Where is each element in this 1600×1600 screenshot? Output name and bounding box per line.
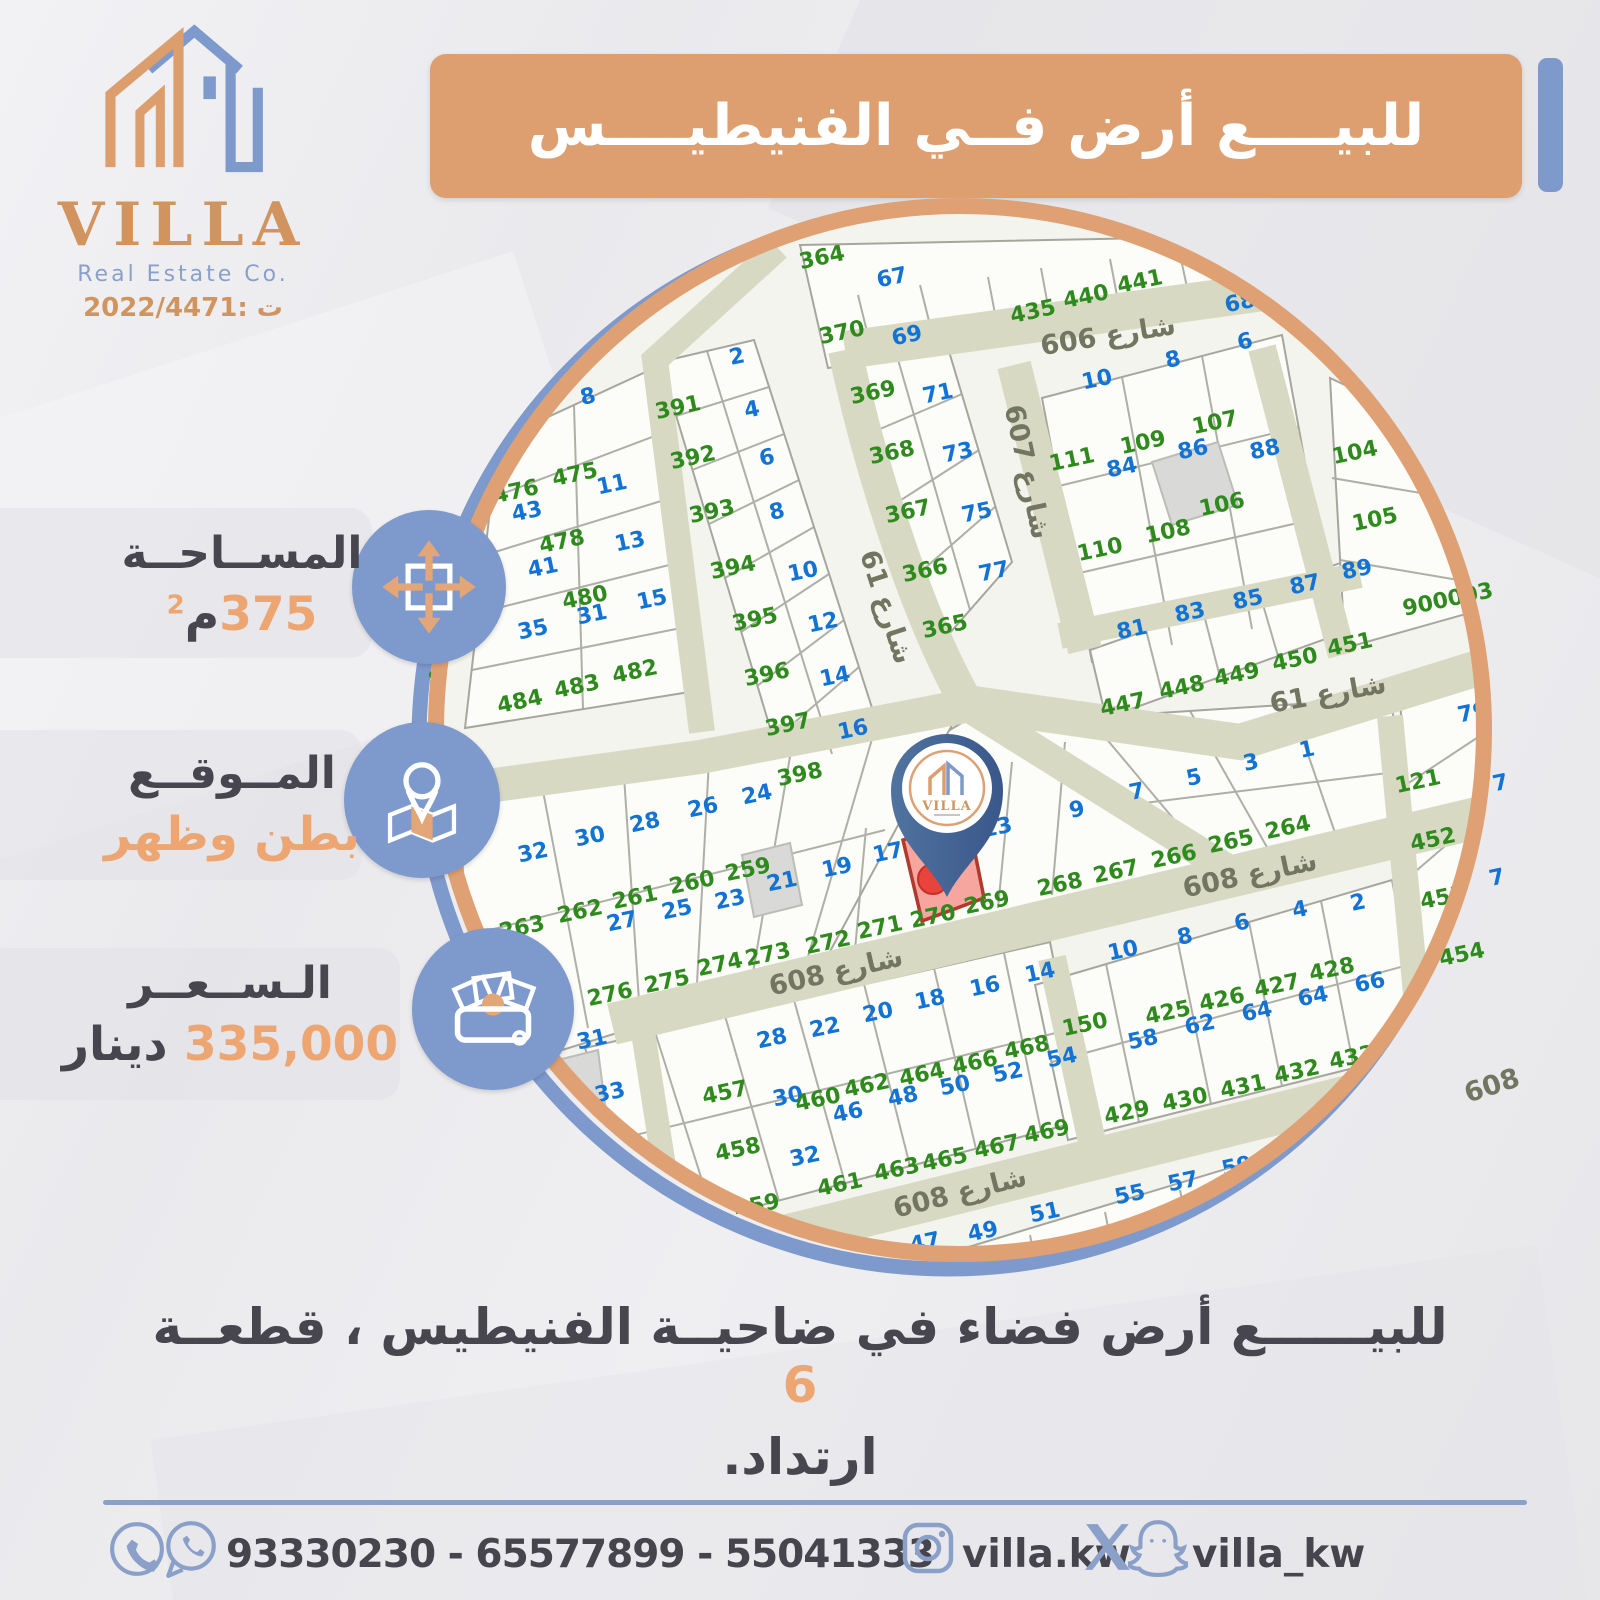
- x-icon[interactable]: [1082, 1522, 1134, 1574]
- contact-divider: [103, 1500, 1527, 1505]
- area-expand-icon: [381, 539, 477, 635]
- contact-bar: 93330230 - 65577899 - 55041333 villa.kw …: [0, 1514, 1600, 1594]
- poster: VILLA Real Estate Co. 2022/4471: ت للبيـ…: [0, 0, 1600, 1600]
- map-pin-icon: [373, 751, 471, 849]
- area-label: المســاحــة: [92, 528, 392, 579]
- price-info: الـســعــر 335,000 دينار: [60, 958, 400, 1072]
- whatsapp-icon[interactable]: [160, 1518, 220, 1580]
- plot-block-number: 6: [783, 1356, 818, 1414]
- price-label: الـســعــر: [60, 958, 400, 1009]
- location-info: المــوقــع بطن وظهر: [82, 748, 382, 862]
- area-value: 375م2: [92, 587, 392, 642]
- description-line1: للبيــــــع أرض فضاء في ضاحيــة الفنيطيس…: [150, 1298, 1450, 1414]
- location-value: بطن وظهر: [82, 807, 382, 862]
- price-badge: [412, 928, 574, 1090]
- phone-numbers[interactable]: 93330230 - 65577899 - 55041333: [226, 1532, 934, 1577]
- instagram-icon[interactable]: [900, 1520, 956, 1576]
- area-info: المســاحــة 375م2: [92, 528, 392, 642]
- description-line2: ارتداد.: [150, 1428, 1450, 1486]
- price-value: 335,000 دينار: [60, 1017, 400, 1072]
- social-handle[interactable]: villa_kw: [1192, 1532, 1365, 1577]
- location-label: المــوقــع: [82, 748, 382, 799]
- snapchat-icon[interactable]: [1128, 1516, 1188, 1578]
- phone-icon[interactable]: [108, 1520, 166, 1578]
- money-wallet-icon: [442, 958, 544, 1060]
